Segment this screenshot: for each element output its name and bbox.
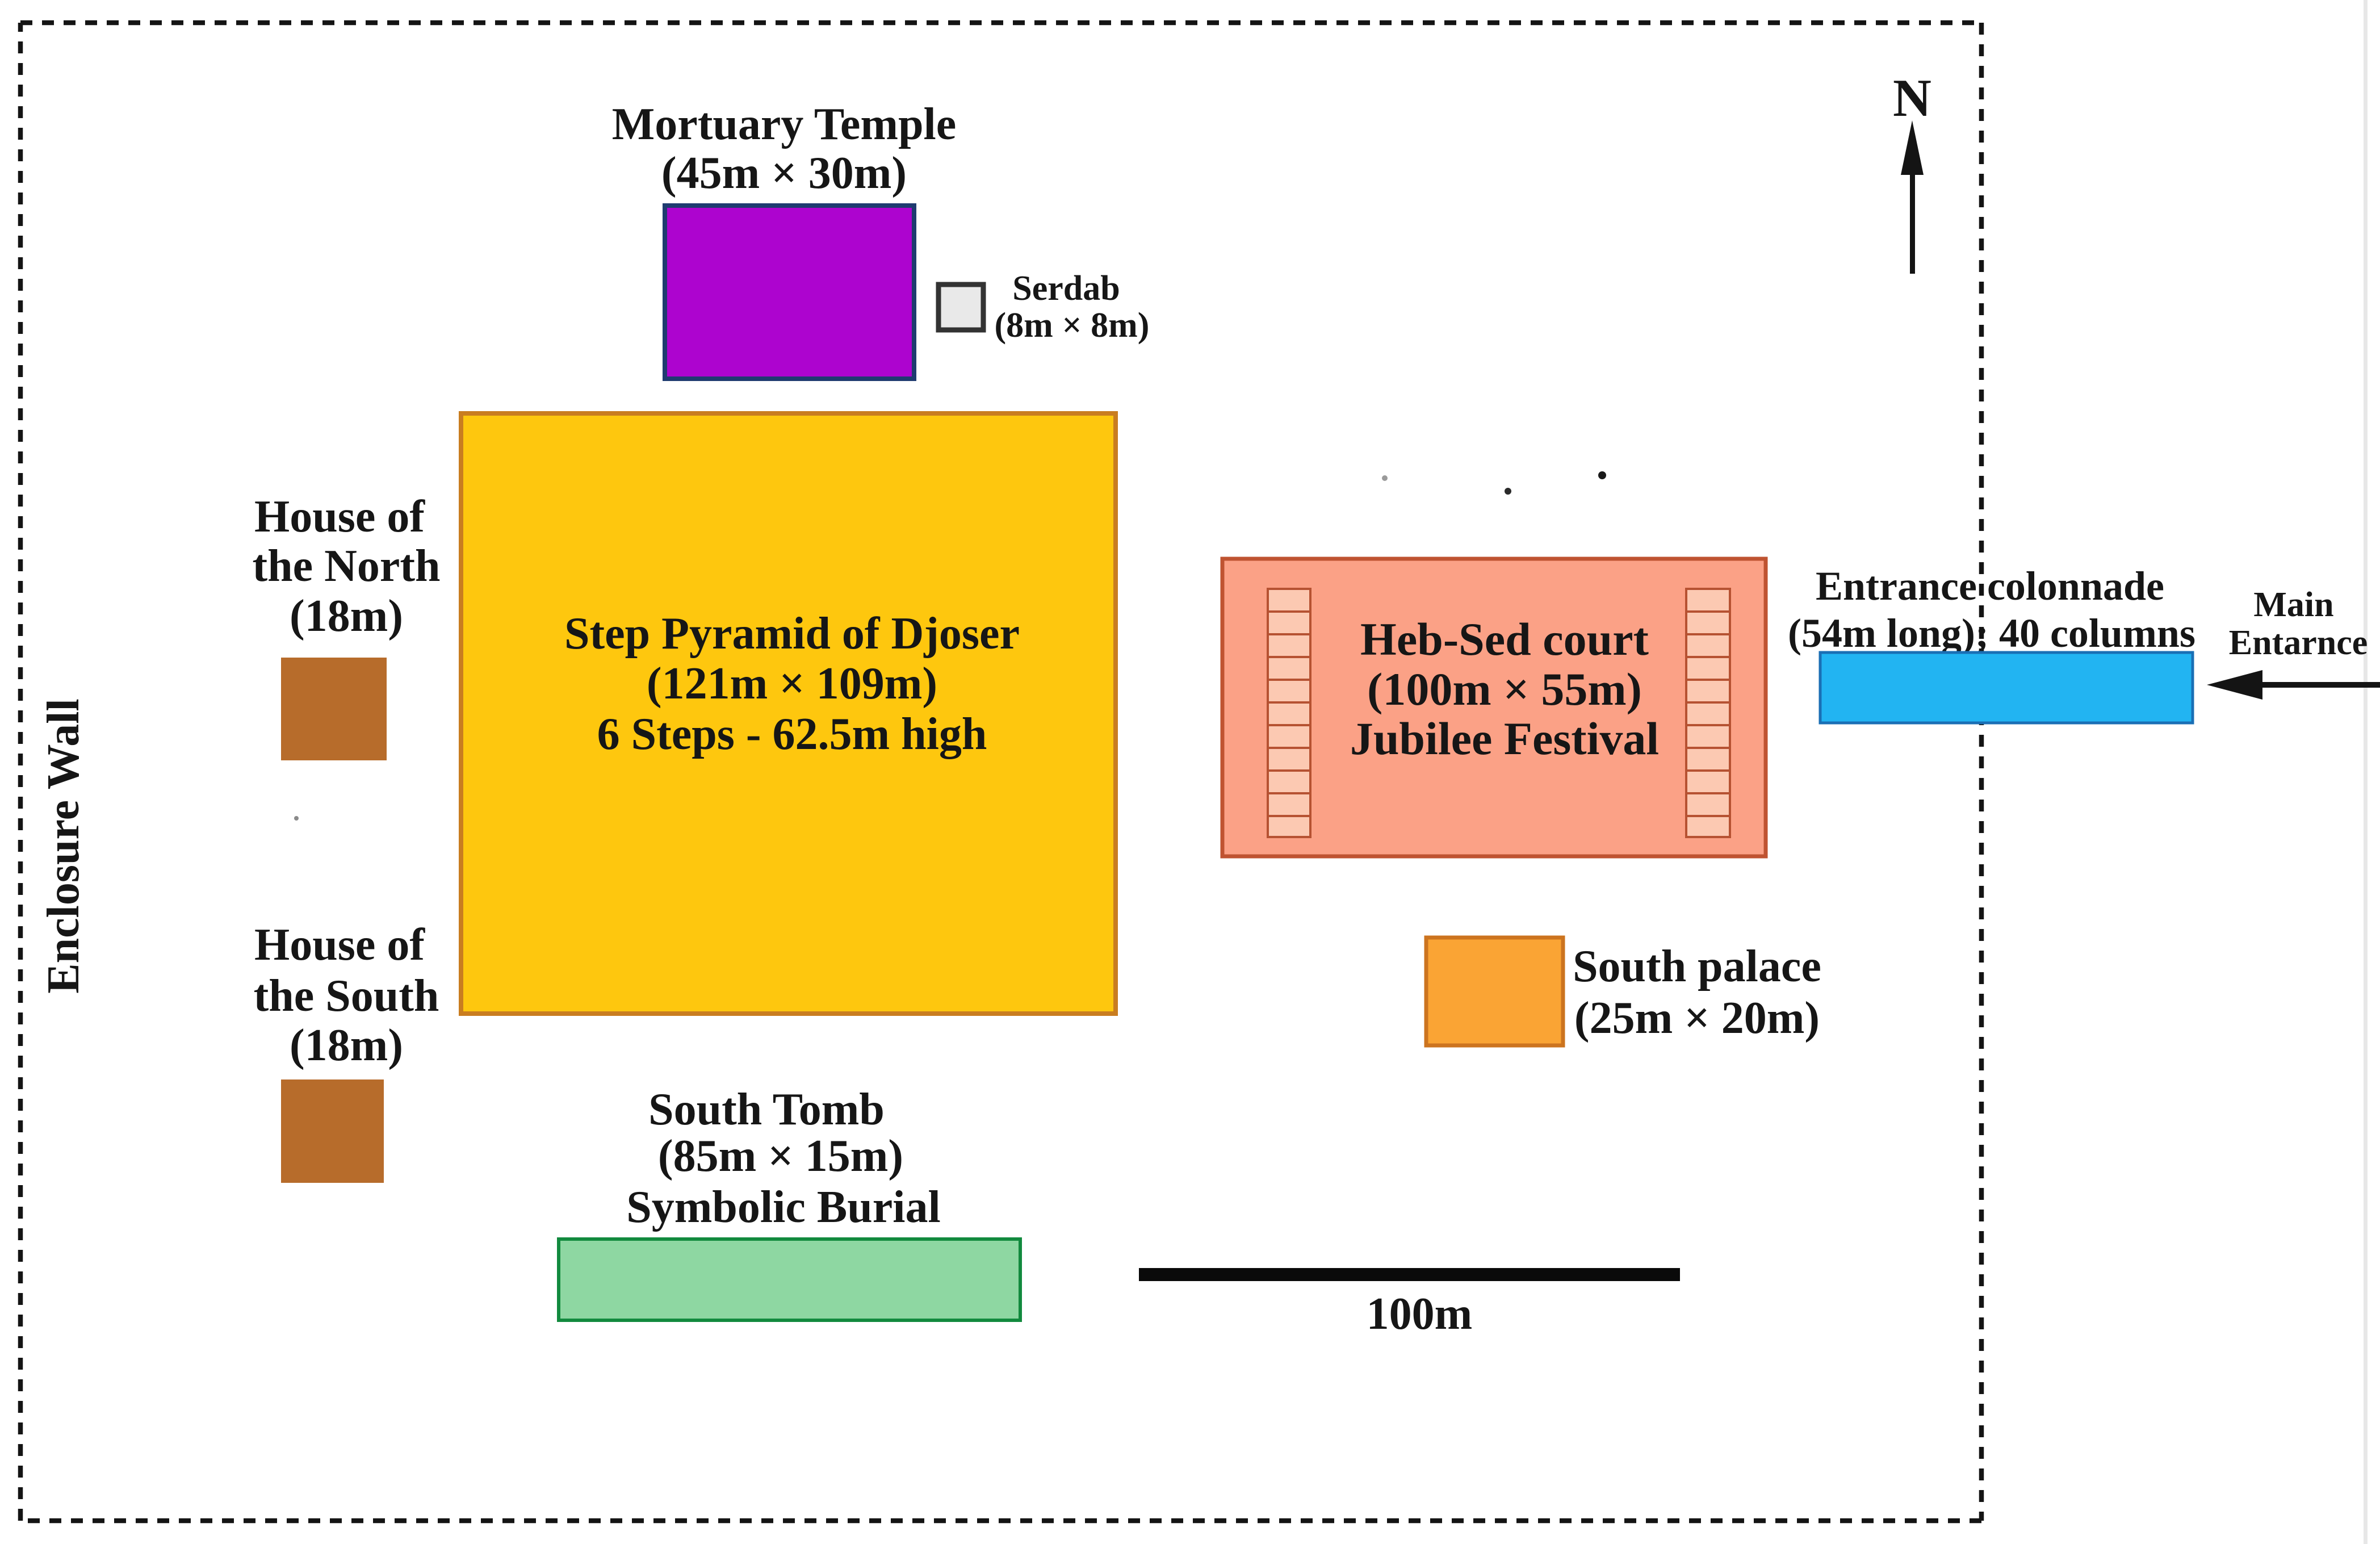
svg-text:(25m × 20m): (25m × 20m) [1574,993,1820,1043]
svg-text:Serdab: Serdab [1012,269,1120,308]
svg-text:Main: Main [2253,585,2333,624]
svg-text:the South: the South [254,971,439,1021]
svg-text:(45m × 30m): (45m × 30m) [661,148,907,198]
svg-text:(121m × 109m): (121m × 109m) [647,659,937,709]
svg-text:(8m × 8m): (8m × 8m) [995,306,1150,345]
svg-text:Step Pyramid of Djoser: Step Pyramid of Djoser [564,609,1020,659]
svg-text:Enclosure Wall: Enclosure Wall [39,698,89,993]
svg-text:the North: the North [252,541,440,591]
svg-text:Symbolic Burial: Symbolic Burial [626,1182,940,1232]
svg-text:Entrance colonnade: Entrance colonnade [1816,563,2164,609]
svg-text:(85m × 15m): (85m × 15m) [658,1131,903,1181]
svg-text:Heb-Sed court: Heb-Sed court [1360,613,1649,665]
svg-text:Jubilee Festival: Jubilee Festival [1350,713,1659,764]
svg-text:Entarnce: Entarnce [2229,624,2368,662]
svg-text:(18m): (18m) [290,591,403,641]
svg-text:N: N [1893,69,1931,128]
svg-text:100m: 100m [1367,1289,1473,1339]
svg-text:South palace: South palace [1573,942,1821,991]
svg-text:South Tomb: South Tomb [648,1085,885,1135]
svg-text:(100m × 55m): (100m × 55m) [1367,663,1642,715]
svg-text:(54m long); 40 columns: (54m long); 40 columns [1788,610,2195,656]
svg-text:House of: House of [254,492,425,542]
svg-text:House of: House of [254,920,425,970]
svg-text:Mortuary Temple: Mortuary Temple [612,99,957,149]
svg-text:6 Steps - 62.5m high: 6 Steps - 62.5m high [597,709,987,759]
svg-text:(18m): (18m) [290,1020,403,1070]
